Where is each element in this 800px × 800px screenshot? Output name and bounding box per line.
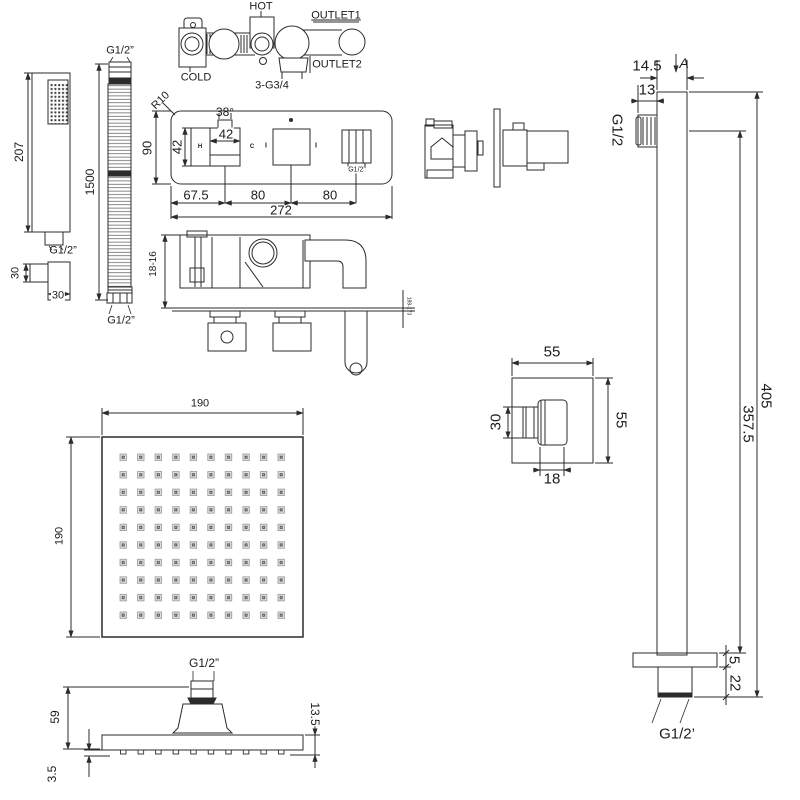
panel-dim-left: 67.5 [183, 189, 208, 202]
hose-thread-bottom-label: G1/2” [107, 316, 135, 327]
panel-angle-label: 38° [216, 106, 234, 118]
outlet2-label: OUTLET2 [312, 60, 362, 71]
head-side-drawing [63, 671, 320, 777]
valve-body-drawing [161, 231, 415, 375]
head-height-dim: 190 [55, 527, 66, 545]
arm-outlet-thread-label: G1/2’ [659, 727, 695, 742]
panel-dim-right: 80 [323, 189, 337, 202]
arm-width-dim: 14.5 [632, 59, 661, 74]
diverter-knob [273, 129, 310, 165]
bracket-height-dim: 30 [11, 267, 22, 279]
line-art [0, 0, 800, 800]
arm-flange-thickness-dim: 5 [727, 656, 742, 664]
diverter-valve-drawing [425, 109, 568, 187]
valve-depth-range-dim: 18-16 [149, 251, 159, 277]
head-width-dim: 190 [191, 399, 209, 410]
knob-height-dim: 42 [171, 140, 184, 154]
head-side-height-dim: 59 [49, 710, 61, 723]
outlet1-label: OUTLET1 [311, 11, 361, 22]
cold-label: COLD [181, 73, 212, 84]
bracket-width-dim: 30 [51, 291, 65, 302]
indicator-mark-right: I [315, 143, 317, 150]
panel-total-width-dim: 272 [270, 204, 292, 217]
hose-length-dim: 1500 [84, 168, 96, 197]
hot-label: HOT [249, 2, 272, 13]
elbow-spout-width-dim: 18 [543, 472, 562, 487]
head-edge-thickness-dim: 13.5 [309, 701, 321, 726]
head-inlet-thread-label: G1/2” [189, 657, 219, 669]
arm-thread-length-dim: 22 [728, 675, 743, 692]
technical-drawing-sheet: HOT OUTLET1 OUTLET2 COLD 3-G3/4 207 G1/2… [0, 0, 800, 800]
arm-section-mark: A [679, 56, 688, 70]
hot-mark: H [198, 144, 202, 150]
connections-label: 3-G3/4 [255, 81, 289, 92]
arm-inlet-thread-label: G1/2 [610, 114, 625, 147]
arm-overall-length-dim: 405 [759, 383, 774, 408]
valve-plate-range-dim: 189-173 [406, 297, 411, 315]
cold-mark: C [250, 144, 254, 150]
knob-width-dim: 42 [218, 128, 234, 141]
indicator-mark-left: I [265, 143, 267, 150]
wall-elbow-drawing [503, 358, 613, 476]
panel-dim-mid: 80 [251, 189, 265, 202]
shower-arm-drawing [631, 54, 763, 723]
elbow-width-dim: 55 [544, 345, 561, 360]
head-nozzle-height-dim: 3.5 [46, 766, 58, 783]
elbow-spout-height-dim: 30 [489, 414, 504, 431]
handset-length-dim: 207 [13, 142, 25, 162]
handset-thread-label: G1/2” [49, 246, 77, 257]
hose-drawing [95, 57, 132, 314]
elbow-height-dim: 55 [614, 412, 629, 429]
arm-inlet-width-dim: 13 [639, 83, 656, 98]
head-face-drawing [66, 408, 303, 637]
hose-thread-top-label: G1/2” [106, 46, 134, 57]
panel-outlet-thread-label: G1/2” [347, 167, 367, 174]
handset-drawing [23, 73, 70, 300]
arm-flange-length-dim: 357.5 [741, 405, 756, 443]
panel-height-dim: 90 [141, 141, 154, 155]
